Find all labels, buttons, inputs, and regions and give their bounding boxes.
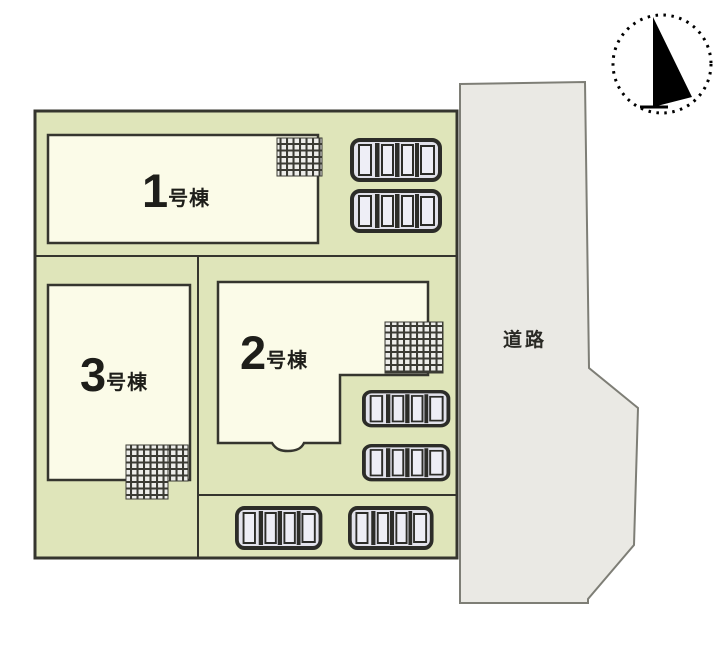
hatch-area-icon [126, 445, 168, 499]
car-icon [352, 140, 440, 180]
car-icon [350, 508, 432, 548]
site-plan-canvas: 1 号棟 2 号棟 3 号棟 道路 [0, 0, 723, 648]
building-3-number: 3 [80, 356, 106, 395]
road-label: 道路 [503, 325, 547, 352]
building-2-suffix: 号棟 [266, 351, 308, 373]
building-2-label: 2 号棟 [240, 334, 308, 373]
building-3-suffix: 号棟 [106, 373, 148, 395]
hatch-area-icon [385, 322, 443, 373]
road-area [460, 82, 638, 603]
building-1-number: 1 [142, 172, 168, 211]
building-1-label: 1 号棟 [142, 172, 210, 211]
building-2-number: 2 [240, 334, 266, 373]
car-icon [364, 446, 448, 480]
car-icon [352, 191, 440, 231]
north-arrow-icon [613, 15, 711, 113]
car-icon [364, 392, 448, 426]
hatch-area-icon [277, 138, 322, 176]
building-1-suffix: 号棟 [168, 189, 210, 211]
building-3-label: 3 号棟 [80, 356, 148, 395]
site-plan-drawing [0, 0, 723, 648]
car-icon [237, 508, 321, 548]
